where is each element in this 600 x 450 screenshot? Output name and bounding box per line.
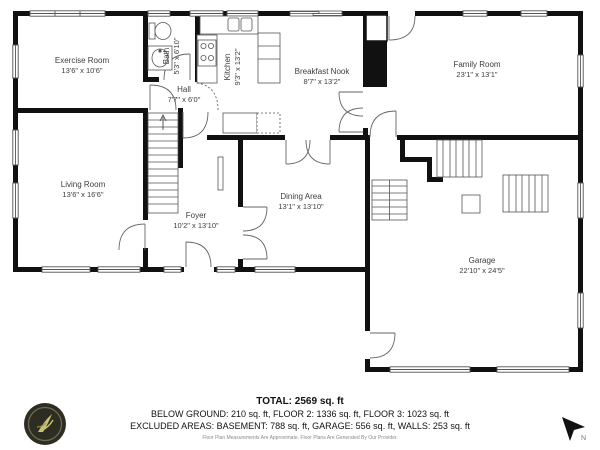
toilet-icon <box>149 23 171 40</box>
stairs-basement-lower <box>503 175 548 212</box>
fireplace-chimney <box>363 41 387 87</box>
window <box>164 267 181 272</box>
walls <box>13 11 583 372</box>
wall-exercise-bottom <box>13 108 148 113</box>
window <box>98 267 140 272</box>
brand-logo-icon <box>22 401 68 447</box>
wall-nook-divider-bottom <box>363 128 368 137</box>
excluded-areas-text: EXCLUDED AREAS: BASEMENT: 788 sq. ft, GA… <box>0 421 600 431</box>
door-arc <box>183 112 208 138</box>
window <box>13 130 18 165</box>
wall-bath-left <box>143 11 148 82</box>
garage-door <box>497 367 569 372</box>
door-arc <box>339 92 363 116</box>
bath-fixtures <box>148 23 172 71</box>
bath-sink-icon <box>148 46 172 70</box>
window <box>521 11 547 16</box>
floor-plan: Exercise Room13'6" x 10'6"Bath5'3" x 6'1… <box>0 0 600 392</box>
window <box>227 11 258 16</box>
window <box>148 11 170 16</box>
door-arc <box>186 242 211 267</box>
door-arc <box>370 333 395 358</box>
floor-plan-page: { "plan": { "rooms": [ {"id":"exercise-r… <box>0 0 600 450</box>
north-arrow-icon: N <box>556 412 596 446</box>
summary-footer: TOTAL: 2569 sq. ft BELOW GROUND: 210 sq.… <box>0 396 600 441</box>
stairs <box>148 113 548 220</box>
door-arc <box>119 224 145 250</box>
window <box>13 183 18 218</box>
window <box>42 267 90 272</box>
door-arc <box>370 111 396 137</box>
window <box>578 293 583 328</box>
garage-door <box>390 367 470 372</box>
floor-plan-canvas <box>0 0 600 392</box>
window <box>578 183 583 218</box>
door-arc <box>243 207 267 231</box>
window <box>255 267 295 272</box>
window <box>30 11 105 16</box>
window <box>13 45 18 78</box>
corner-cabinet-dashed <box>197 83 218 110</box>
total-area-text: TOTAL: 2569 sq. ft <box>0 396 600 407</box>
floor-areas-text: BELOW GROUND: 210 sq. ft, FLOOR 2: 1336 … <box>0 409 600 419</box>
stairs-main <box>148 113 178 213</box>
closet-jamb <box>218 157 223 190</box>
stove-icon <box>198 40 216 66</box>
stairs-garage-left <box>372 180 407 220</box>
sliding-door <box>290 11 342 16</box>
chimney-flue <box>366 15 387 41</box>
wall-dining-left-stub <box>238 259 243 267</box>
window <box>463 11 487 16</box>
landing-platform <box>462 195 480 213</box>
wall-foyer-top <box>178 108 183 168</box>
window <box>190 11 223 16</box>
kitchen-peninsula <box>223 113 257 133</box>
wall-stair-left <box>143 108 148 220</box>
windows <box>13 11 583 328</box>
door-arc <box>150 85 176 110</box>
svg-text:N: N <box>581 435 586 442</box>
door-arc <box>339 108 363 132</box>
door-arc <box>243 235 267 259</box>
wall-stair-left-stub <box>143 248 148 267</box>
stairs-basement-upper <box>437 140 482 177</box>
wall-basement-stair-4 <box>427 177 443 182</box>
wall-dining-left <box>238 135 243 207</box>
upper-cabinet-dashed <box>257 113 280 133</box>
window <box>578 55 583 87</box>
kitchen-counter-right <box>258 33 280 83</box>
door-arc <box>389 16 415 40</box>
window <box>217 267 235 272</box>
disclaimer-text: Floor Plan Measurements Are Approximate.… <box>0 435 600 441</box>
wall-garage-right <box>578 140 583 372</box>
